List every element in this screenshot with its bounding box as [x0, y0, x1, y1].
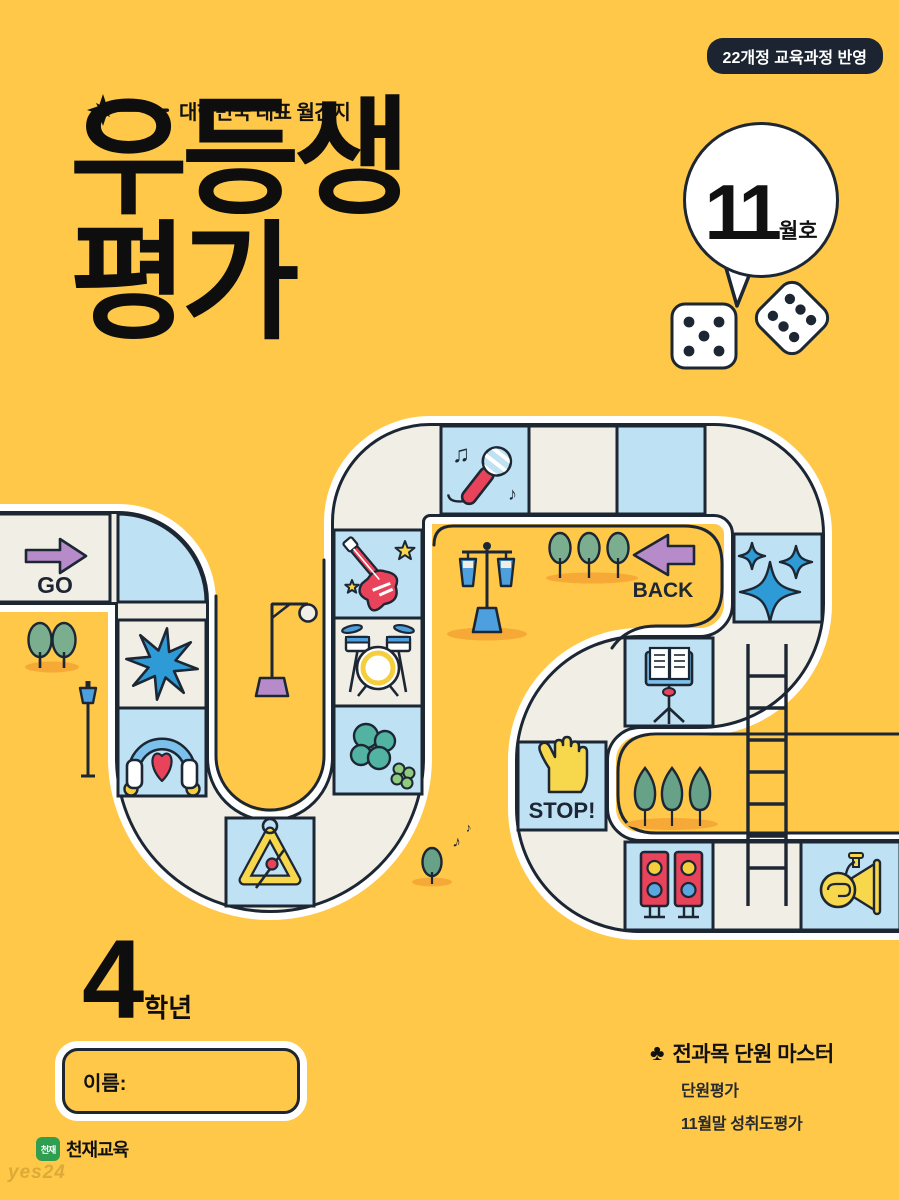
go-label: GO: [37, 572, 73, 598]
publisher-mark-icon: 천재: [36, 1137, 60, 1161]
issue-bubble: 11 월호: [683, 122, 839, 278]
hanging-lamp-icon: [256, 604, 317, 696]
tile-back: [617, 426, 705, 514]
name-field-label: 이름:: [83, 1067, 126, 1096]
clover-bullet-icon: ♣: [650, 1042, 664, 1064]
tile-ladder: [713, 842, 801, 930]
back-arrow-icon: BACK: [633, 535, 694, 602]
issue-suffix: 월호: [779, 215, 818, 245]
tile-sparkles: [734, 534, 822, 622]
music-note-icon: ♪: [464, 820, 472, 835]
tile-empty: [529, 426, 617, 514]
publisher-logo: 천재 천재교육: [36, 1136, 128, 1162]
feature-item: 단원평가: [681, 1077, 834, 1101]
music-note-icon: ♪: [451, 833, 462, 851]
grade-number: 4: [82, 930, 140, 1031]
store-watermark: yes24: [8, 1162, 66, 1184]
back-label: BACK: [633, 579, 694, 602]
tree-pair: [25, 623, 79, 673]
stop-label: STOP!: [529, 798, 596, 823]
publisher-name: 천재교육: [66, 1136, 128, 1162]
small-tree-and-notes: ♪ ♪: [412, 820, 472, 886]
music-note-icon: ♫: [452, 441, 470, 468]
feature-item: 11월말 성취도평가: [681, 1110, 834, 1134]
grade-label: 학년: [144, 988, 192, 1025]
double-lamp-icon: [447, 542, 527, 641]
book-cover: 22개정 교육과정 반영 대한민국 대표 월간지 우등생 평가 11 월호: [0, 0, 899, 1200]
name-field: 이름:: [62, 1048, 300, 1114]
tree-trio-round: [546, 533, 638, 584]
music-note-icon: ♪: [508, 484, 517, 504]
street-lamp-icon: [80, 681, 96, 776]
issue-number: 11: [704, 173, 776, 251]
grade: 4 학년: [82, 930, 192, 1031]
tree-trio-pointy: [626, 768, 718, 830]
features-block: ♣ 전과목 단원 마스터 단원평가 11월말 성취도평가: [650, 1038, 834, 1134]
features-heading: 전과목 단원 마스터: [672, 1038, 833, 1068]
